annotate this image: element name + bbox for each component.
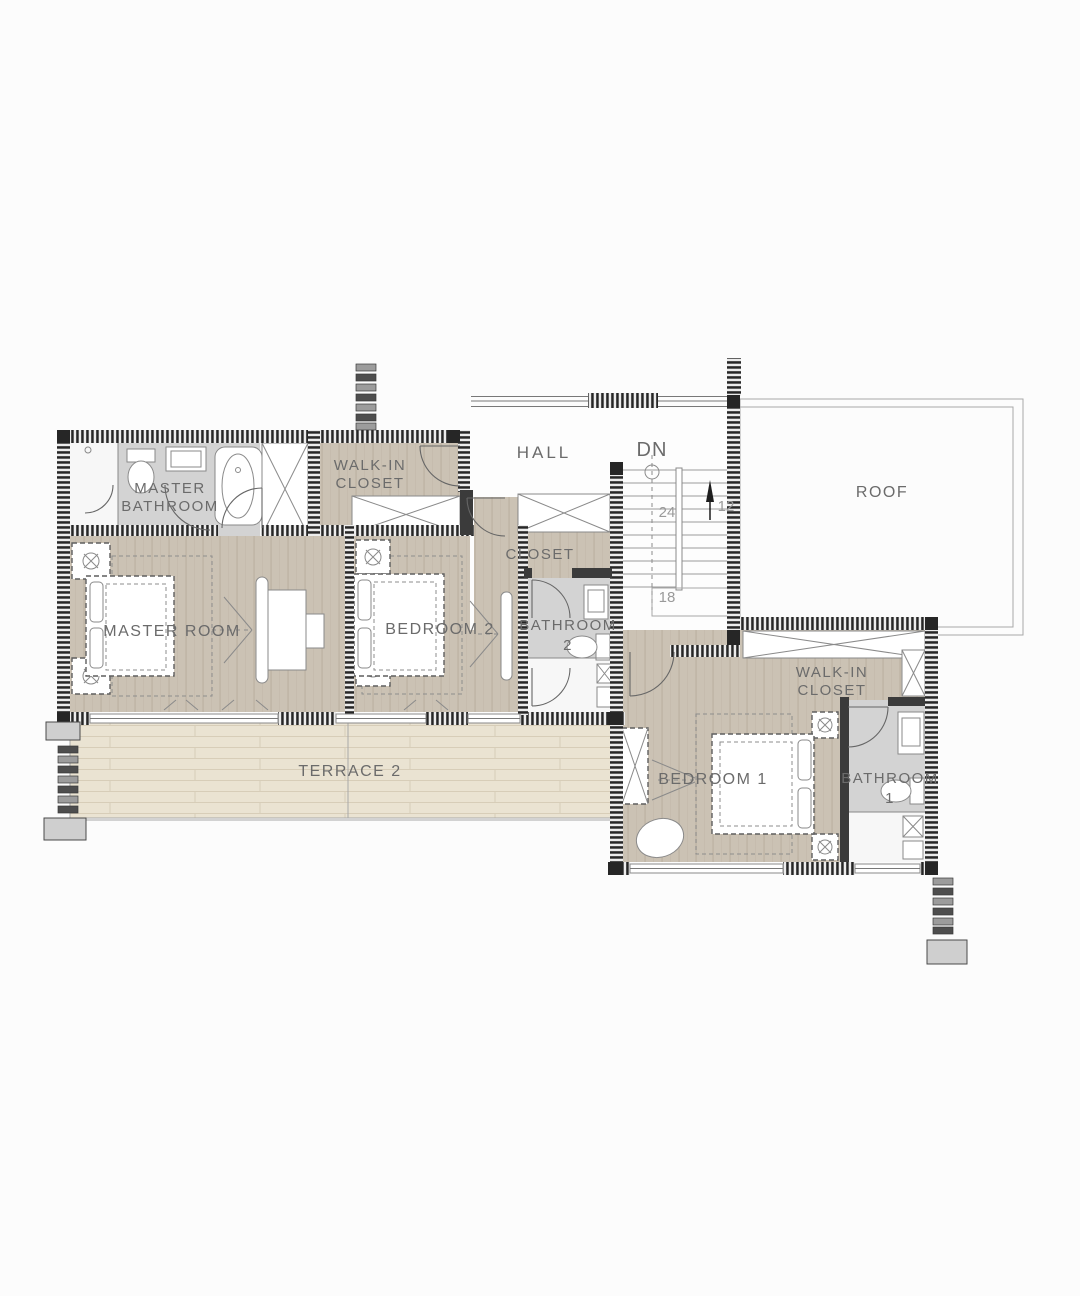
floor-plan-page: MASTER BATHROOM WALK-IN CLOSET HALL DN 2…: [0, 0, 1080, 1296]
label-master-room: MASTER ROOM: [103, 623, 240, 640]
sink-symbol-bathroom-2: [584, 585, 608, 619]
shower-symbol-master: [262, 443, 308, 535]
label-walk-in-closet-left-line2: CLOSET: [335, 475, 404, 492]
wardrobe-bedroom-1: [622, 728, 648, 804]
small-sink-symbol: [597, 687, 612, 707]
nightstand-lamp: [812, 834, 838, 860]
label-terrace-2: TERRACE 2: [298, 763, 401, 780]
label-roof: ROOF: [856, 484, 908, 501]
bathtub-symbol: [215, 447, 262, 525]
sink-symbol-master: [166, 447, 206, 471]
tv-console-bedroom-2: [501, 592, 512, 680]
stair-count-right: 12: [718, 498, 735, 515]
label-bathroom-1-line1: BATHROOM: [841, 770, 939, 787]
toilet-symbol-bathroom-2: [567, 634, 610, 660]
label-hall: HALL: [517, 443, 572, 462]
window-bedroom-1-bottom: [630, 864, 920, 873]
marker-top: [356, 364, 376, 430]
wardrobe-closet-corridor: [518, 494, 610, 532]
nightstand-lamp: [356, 540, 390, 574]
label-walk-in-closet-right-line2: CLOSET: [797, 682, 866, 699]
label-master-bathroom-line1: MASTER: [134, 480, 206, 497]
label-bathroom-2-line2: 2: [563, 637, 573, 654]
small-sink-symbol: [903, 841, 923, 859]
floor-plan-drawing: MASTER BATHROOM WALK-IN CLOSET HALL DN 2…: [0, 0, 1080, 1296]
label-bathroom-1-line2: 1: [885, 790, 895, 807]
sink-symbol-bathroom-1: [898, 712, 924, 754]
label-stairs-dn: DN: [637, 439, 668, 461]
label-closet: CLOSET: [505, 546, 574, 563]
label-bedroom-1: BEDROOM 1: [658, 771, 768, 788]
nightstand-lamp: [72, 543, 110, 579]
stair-count-left: 24: [659, 504, 676, 521]
label-master-bathroom-line2: BATHROOM: [121, 498, 219, 515]
stair-count-landing: 18: [659, 589, 676, 606]
nightstand-lamp: [812, 712, 838, 738]
label-walk-in-closet-right-line1: WALK-IN: [796, 664, 868, 681]
label-bedroom-2: BEDROOM 2: [385, 621, 495, 638]
label-bathroom-2-line1: BATHROOM: [519, 617, 617, 634]
label-walk-in-closet-left-line1: WALK-IN: [334, 457, 406, 474]
